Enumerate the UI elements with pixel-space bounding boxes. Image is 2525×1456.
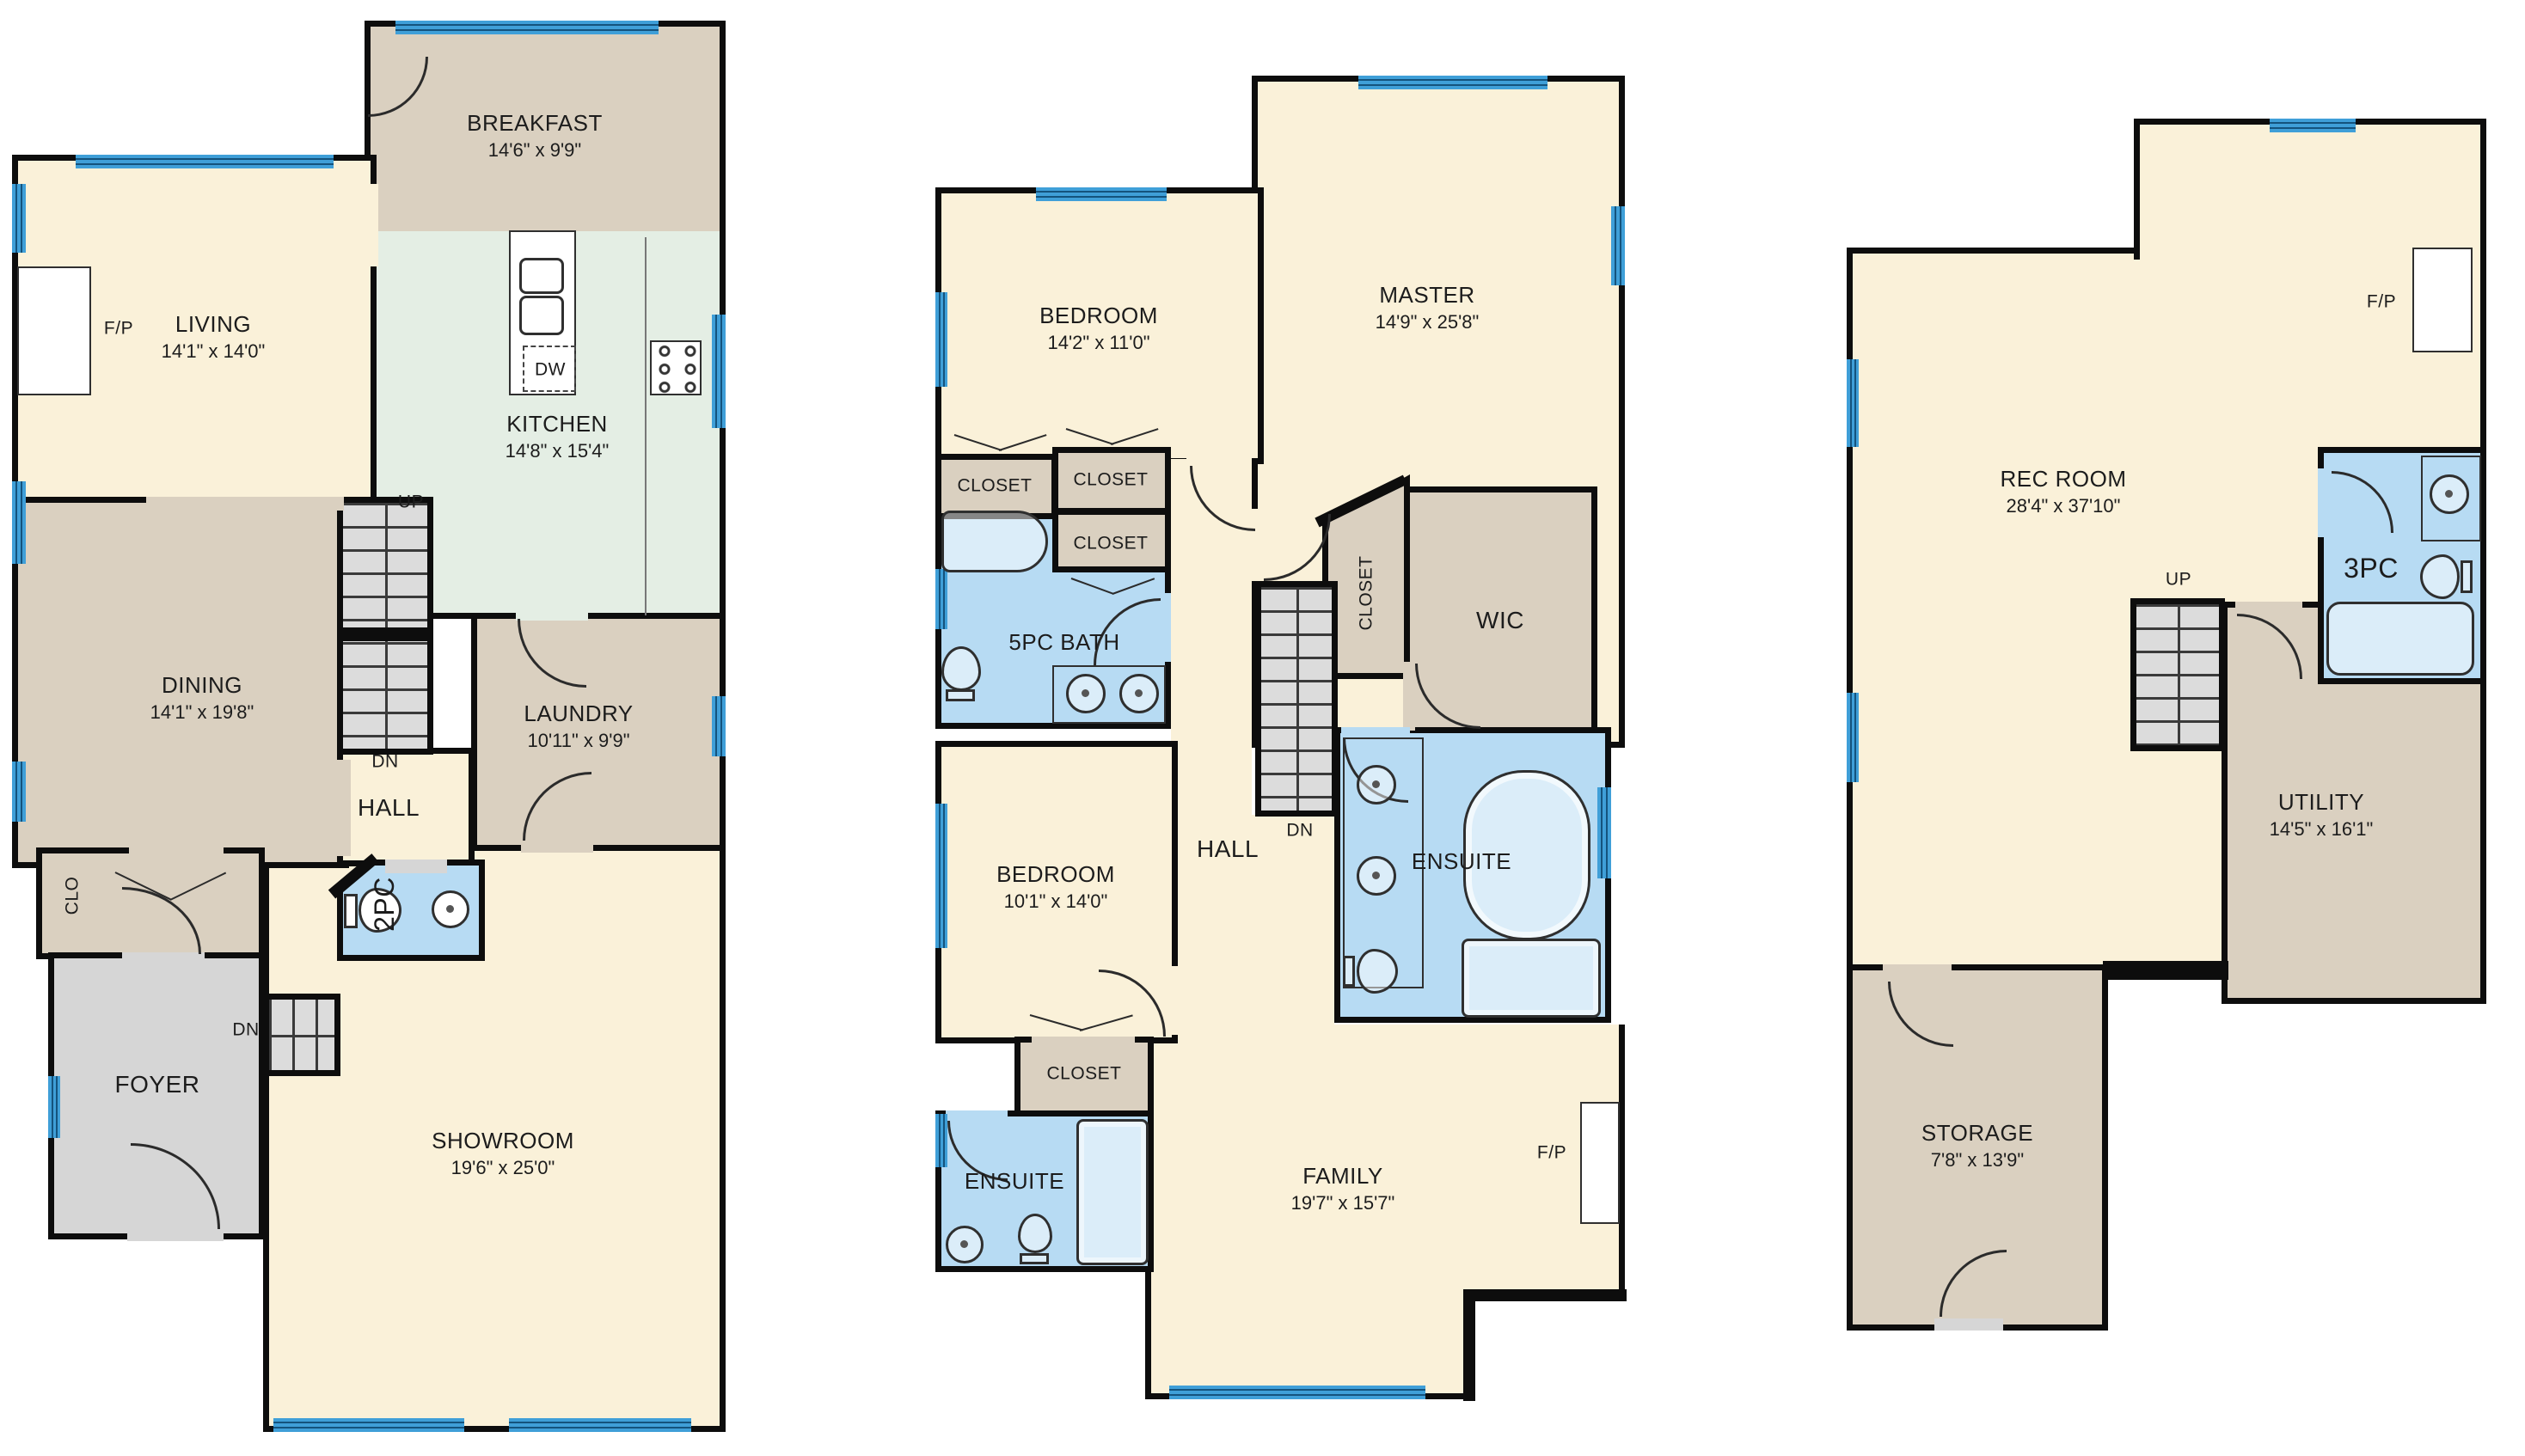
window-ensuite2-left <box>935 1114 947 1167</box>
3pc-tub <box>2326 602 2474 676</box>
stairs-divider-wall <box>337 627 433 641</box>
opening-dining-hall <box>337 760 351 856</box>
ensuite-master-sink-1 <box>1357 765 1396 804</box>
label-showroom: SHOWROOM19'6" x 25'0" <box>432 1127 574 1180</box>
stairs-second-dn <box>1255 581 1338 817</box>
fireplace-living <box>17 266 91 395</box>
door-hall-2pc <box>385 860 447 873</box>
3pc-toilet-bowl <box>2420 554 2460 599</box>
wall-rec-bottom-step <box>2103 961 2228 980</box>
label-up-1: UP <box>398 490 424 513</box>
opening-living-breakfast <box>365 184 378 266</box>
label-dn-foyer: DN <box>232 1018 259 1041</box>
window-laundry-right <box>712 696 726 756</box>
door-rec-utility <box>2235 602 2302 615</box>
stairs-basement-up <box>2130 598 2225 751</box>
label-living: LIVING14'1" x 14'0" <box>162 310 266 364</box>
label-ensuite-2: ENSUITE <box>965 1167 1064 1196</box>
label-closet-4: CLOSET <box>1046 1061 1121 1085</box>
label-clo: CLO <box>60 877 83 915</box>
window-ensuite-master-right <box>1597 787 1611 878</box>
window-bedroom2-left <box>935 804 947 948</box>
window-rec-left-1 <box>1847 359 1859 447</box>
opening-living-dining <box>146 497 344 511</box>
door-3pc <box>2318 468 2330 537</box>
label-family: FAMILY19'7" x 15'7" <box>1291 1162 1395 1215</box>
label-laundry: LAUNDRY10'11" x 9'9" <box>524 700 633 753</box>
ensuite-master-toilet-tank <box>1343 956 1355 987</box>
label-hall-2: HALL <box>1197 834 1259 865</box>
ensuite2-shower <box>1076 1119 1149 1265</box>
label-fp-living: F/P <box>104 316 133 340</box>
label-foyer: FOYER <box>115 1069 200 1100</box>
ensuite-master-shower <box>1462 939 1601 1018</box>
window-bath5-left <box>935 569 947 629</box>
window-breakfast-top <box>395 21 659 34</box>
label-bedroom-1: BEDROOM14'2" x 11'0" <box>1039 302 1158 355</box>
label-bedroom-2: BEDROOM10'1" x 14'0" <box>996 860 1115 914</box>
bath5-sink-1 <box>1066 674 1106 713</box>
window-showroom-bottom-1 <box>273 1418 464 1432</box>
island-sink-1 <box>519 258 564 294</box>
family-notch <box>1463 1289 1627 1401</box>
door-laundry-showroom <box>521 839 593 853</box>
window-living-left <box>12 184 26 253</box>
label-3pc: 3PC <box>2344 551 2399 587</box>
door-closet-4 <box>1032 1037 1135 1049</box>
ensuite2-sink <box>946 1226 984 1263</box>
door-foyer-entry <box>127 1229 224 1241</box>
window-foyer-left <box>48 1076 60 1138</box>
door-rec-storage <box>1883 964 1952 983</box>
3pc-toilet-tank <box>2461 560 2473 593</box>
ensuite2-toilet-tank <box>1020 1253 1049 1264</box>
ensuite-master-sink-2 <box>1357 856 1396 896</box>
window-bedroom1-left <box>935 292 947 387</box>
window-bedroom1-top <box>1036 187 1167 201</box>
label-dining: DINING14'1" x 19'8" <box>150 671 254 725</box>
label-storage: STORAGE7'8" x 13'9" <box>1921 1119 2033 1172</box>
door-storage-exterior <box>1934 1318 2003 1331</box>
stairs-main <box>337 497 433 755</box>
window-master-top <box>1358 76 1547 89</box>
label-utility: UTILITY14'5" x 16'1" <box>2270 788 2374 841</box>
label-up-3: UP <box>2166 567 2191 590</box>
label-hall-1: HALL <box>358 792 420 823</box>
door-bedroom2 <box>1166 966 1178 1035</box>
label-closet-2: CLOSET <box>1073 468 1148 491</box>
label-dn-2: DN <box>1286 818 1313 841</box>
label-kitchen: KITCHEN14'8" x 15'4" <box>506 410 610 463</box>
label-closet-1: CLOSET <box>957 474 1032 497</box>
label-dw: DW <box>535 358 566 381</box>
island-sink-2 <box>519 296 564 335</box>
bath5-toilet-tank <box>946 689 975 701</box>
outside-notch-basement <box>2108 980 2222 1006</box>
fireplace-rec <box>2412 248 2473 352</box>
stairs-foyer-dn <box>263 994 340 1076</box>
label-dn-1: DN <box>371 749 398 773</box>
window-showroom-bottom-2 <box>509 1418 691 1432</box>
fireplace-family <box>1580 1102 1620 1224</box>
ensuite2-toilet-bowl <box>1018 1214 1052 1253</box>
label-master: MASTER14'9" x 25'8" <box>1376 281 1480 334</box>
label-breakfast: BREAKFAST14'6" x 9'9" <box>467 109 603 162</box>
window-rec-left-2 <box>1847 693 1859 782</box>
label-closet-3: CLOSET <box>1073 531 1148 554</box>
door-5pc-bath <box>1159 593 1171 662</box>
stove <box>650 340 702 395</box>
door-dining-foyer <box>122 952 205 966</box>
label-fp-family: F/P <box>1537 1141 1566 1164</box>
floorplan-canvas: LIVING14'1" x 14'0" BREAKFAST14'6" x 9'9… <box>0 0 2525 1456</box>
door-bedroom1 <box>1186 452 1252 466</box>
window-dining-left-2 <box>12 762 26 822</box>
window-breakfast-right <box>712 315 726 428</box>
label-wic: WIC <box>1476 605 1524 636</box>
label-ensuite-master: ENSUITE <box>1412 847 1511 877</box>
2pc-sink <box>432 890 469 928</box>
label-fp-rec: F/P <box>2367 290 2396 313</box>
bath5-tub <box>941 511 1048 572</box>
label-5pc-bath: 5PC BATH <box>1008 628 1119 658</box>
3pc-sink <box>2430 474 2469 514</box>
bath5-sink-2 <box>1119 674 1159 713</box>
room-rec-tower <box>2134 119 2486 260</box>
window-living-top <box>76 155 334 168</box>
label-rec-room: REC ROOM28'4" x 37'10" <box>2001 465 2127 518</box>
kitchen-counter-line <box>645 237 647 615</box>
bath5-toilet-bowl <box>941 646 981 691</box>
label-closet-master: CLOSET <box>1354 555 1377 630</box>
label-2pc: 2PC <box>367 877 403 932</box>
window-rec-top <box>2270 119 2356 132</box>
door-wic <box>1403 662 1415 731</box>
window-family-bottom <box>1169 1386 1425 1399</box>
window-dining-left-1 <box>12 481 26 564</box>
window-master-right <box>1611 206 1625 285</box>
2pc-toilet-tank <box>344 894 358 928</box>
opening-dining-clo <box>129 847 224 860</box>
